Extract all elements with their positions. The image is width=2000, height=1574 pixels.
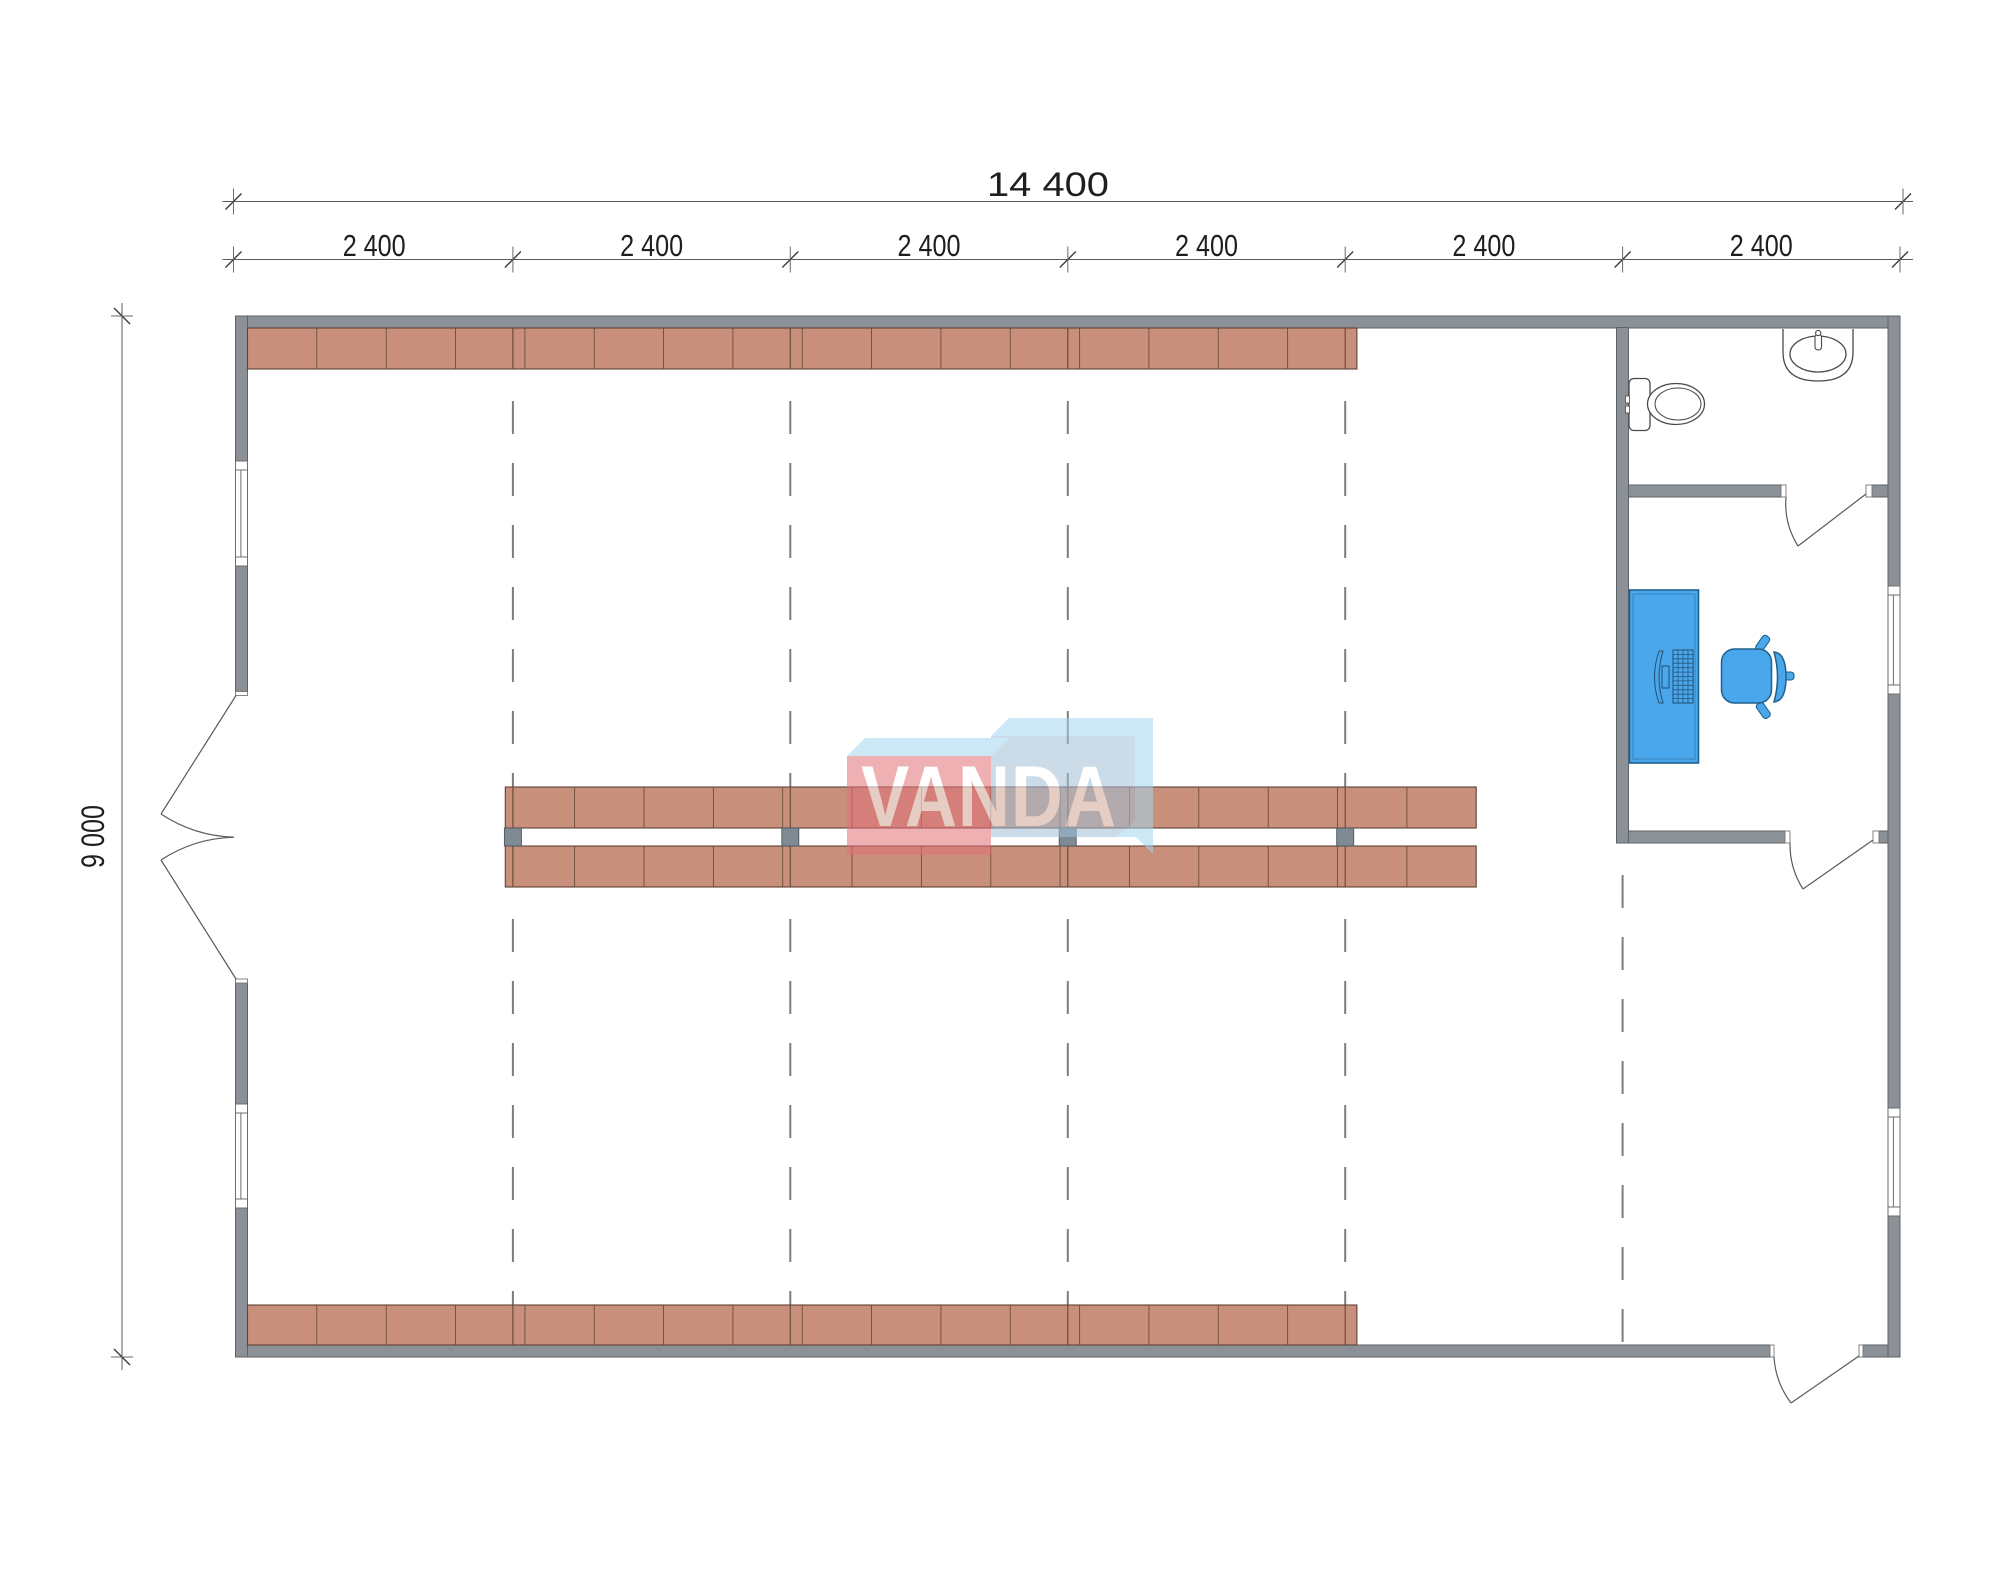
svg-text:2 400: 2 400 bbox=[343, 228, 406, 263]
svg-text:2 400: 2 400 bbox=[1175, 228, 1238, 263]
svg-text:VANDA: VANDA bbox=[861, 748, 1117, 844]
svg-text:9 000: 9 000 bbox=[75, 805, 111, 868]
svg-text:2 400: 2 400 bbox=[620, 228, 683, 263]
svg-text:2 400: 2 400 bbox=[1452, 228, 1515, 263]
svg-text:14 400: 14 400 bbox=[987, 166, 1109, 204]
svg-text:2 400: 2 400 bbox=[898, 228, 961, 263]
svg-text:2 400: 2 400 bbox=[1730, 228, 1793, 263]
